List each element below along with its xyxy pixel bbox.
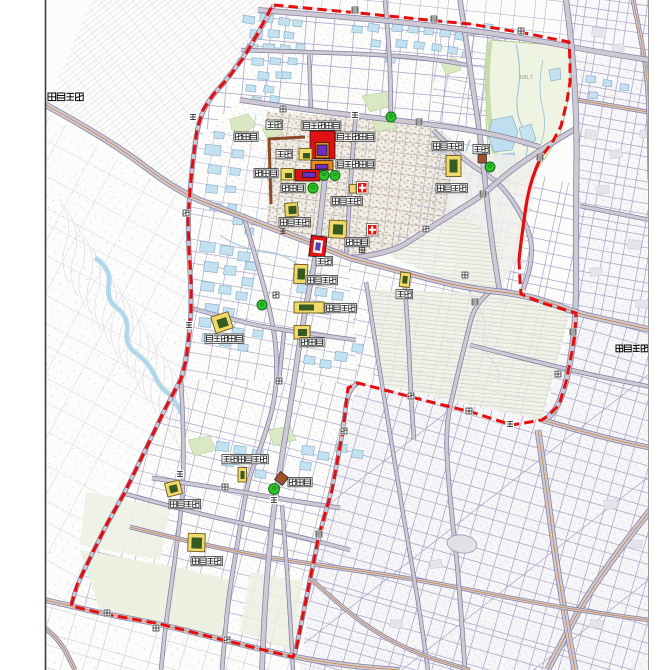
svg-text:105.7: 105.7 xyxy=(519,75,533,81)
